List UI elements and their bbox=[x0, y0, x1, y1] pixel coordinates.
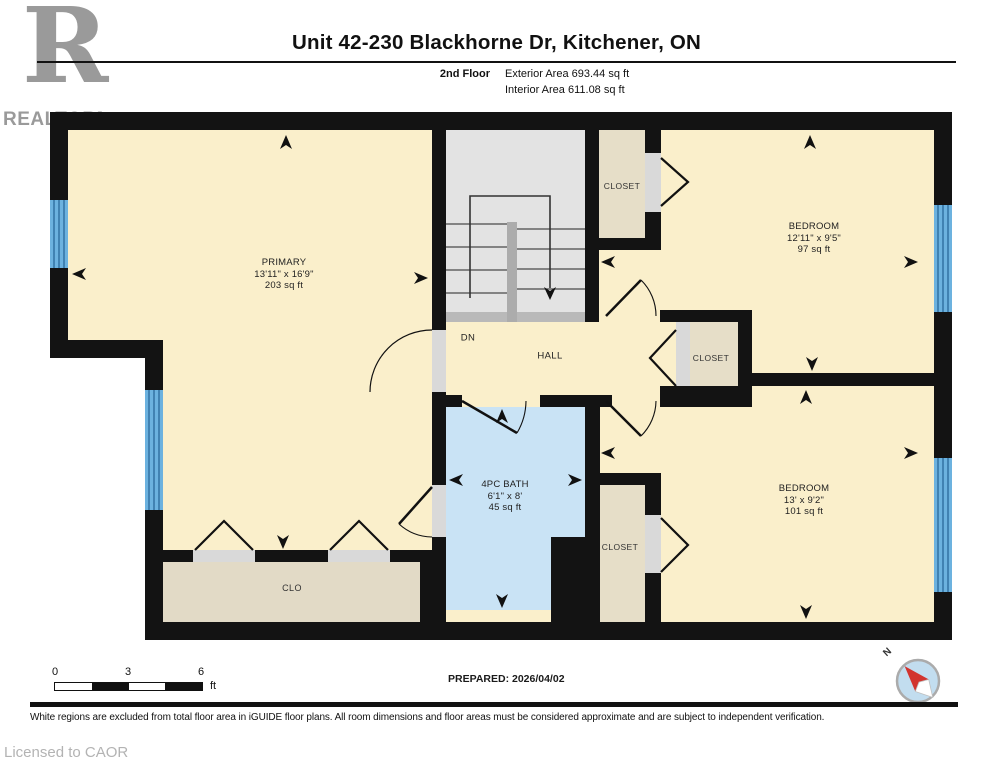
window-right-top bbox=[934, 205, 952, 312]
license-text: Licensed to CAOR bbox=[4, 744, 128, 761]
window-left-bottom bbox=[145, 390, 163, 510]
closet-bottom bbox=[599, 485, 645, 622]
prepared-date: PREPARED: 2026/04/02 bbox=[448, 673, 565, 685]
compass-icon bbox=[897, 660, 939, 703]
bath-label: 4PC BATH6'1" x 8'45 sq ft bbox=[481, 479, 528, 514]
hall-label: HALL bbox=[537, 351, 562, 362]
title-divider bbox=[37, 61, 956, 63]
scale-tick-0: 0 bbox=[52, 666, 58, 678]
window-right-bottom bbox=[934, 458, 952, 592]
scale-bar-segments bbox=[54, 682, 203, 691]
closet-top-label: CLOSET bbox=[604, 181, 640, 191]
disclaimer-text: White regions are excluded from total fl… bbox=[30, 712, 980, 723]
bedroom-bottom-label: BEDROOM13' x 9'2"101 sq ft bbox=[779, 483, 830, 518]
closet-primary-label: CLO bbox=[282, 583, 302, 593]
floor-plan-canvas bbox=[0, 0, 993, 768]
footer-divider bbox=[30, 702, 958, 707]
primary-room-label: PRIMARY13'11" x 16'9"203 sq ft bbox=[254, 257, 313, 292]
floorplan-page: R REALTOR® Unit 42-230 Blackhorne Dr, Ki… bbox=[0, 0, 993, 768]
scale-tick-3: 3 bbox=[125, 666, 131, 678]
closet-bottom-label: CLOSET bbox=[602, 542, 638, 552]
bedroom-top-label: BEDROOM12'11" x 9'5"97 sq ft bbox=[787, 221, 841, 256]
window-left-top bbox=[50, 200, 68, 268]
scale-bar: 0 3 6 ft bbox=[50, 666, 230, 696]
scale-unit: ft bbox=[210, 680, 216, 692]
scale-tick-6: 6 bbox=[198, 666, 204, 678]
closet-mid-label: CLOSET bbox=[693, 353, 729, 363]
stairs-dn-label: DN bbox=[461, 333, 476, 344]
